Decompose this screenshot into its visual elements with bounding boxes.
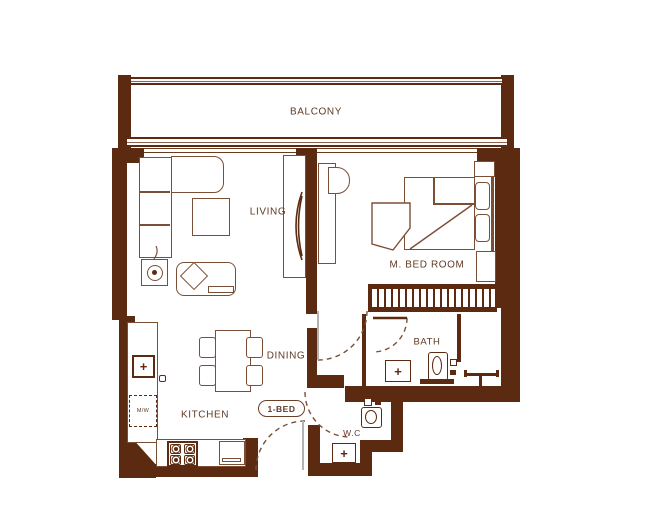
bath-toilet xyxy=(428,352,448,381)
burner-icon xyxy=(184,455,195,465)
bath-flush-dot xyxy=(450,370,456,375)
wc-cistern xyxy=(364,398,372,406)
bed-sheet-line xyxy=(433,203,474,205)
microwave-label: M/W xyxy=(137,408,149,414)
lounge-chair-footrest xyxy=(208,286,234,293)
coffee-table xyxy=(192,198,230,236)
microwave-box: M/W xyxy=(129,395,157,427)
balcony-railing-top xyxy=(131,77,502,85)
entrance-door-arc xyxy=(256,421,305,470)
unit-type-label: 1-BED xyxy=(267,404,295,414)
kitchen-label: KITCHEN xyxy=(181,410,229,421)
toilet-bowl-icon xyxy=(365,410,377,424)
dining-label: DINING xyxy=(267,351,306,362)
burner-icon xyxy=(170,444,181,454)
sink-drainer xyxy=(222,458,241,462)
sofa-section-horizontal xyxy=(171,156,224,193)
master-bedroom-label: M. BED ROOM xyxy=(390,260,465,271)
nightstand-bottom xyxy=(476,251,496,282)
bedroom-door-arc xyxy=(318,311,367,360)
balcony-label: BALCONY xyxy=(290,107,342,118)
sofa-cushion-line xyxy=(140,224,170,226)
sofa-section-vertical xyxy=(139,157,172,258)
balcony-railing-bottom xyxy=(127,137,507,147)
wall-hallway-bottom-stub xyxy=(307,375,344,388)
pillow xyxy=(475,182,490,210)
bath-label: BATH xyxy=(413,337,440,348)
living-label: LIVING xyxy=(250,207,286,218)
dining-chair xyxy=(199,365,216,386)
wc-toilet xyxy=(361,407,382,428)
bath-basin xyxy=(385,360,411,382)
wc-basin xyxy=(332,443,356,463)
floor-plan: BALCONY LIVING M. xyxy=(0,0,660,529)
wall-bath-left-partition xyxy=(362,314,366,387)
unit-type-badge: 1-BED xyxy=(258,400,305,417)
wall-right-bedroom xyxy=(495,148,520,308)
burner-icon xyxy=(184,444,195,454)
wall-bath-shower-partition xyxy=(457,314,461,362)
toilet-bowl-icon xyxy=(432,356,442,375)
kitchen-sink-left xyxy=(132,355,155,378)
bedroom-stool xyxy=(328,167,350,194)
wall-hallway-left xyxy=(307,328,317,378)
dining-chair xyxy=(246,337,263,358)
bath-counter-strip xyxy=(420,379,454,384)
lamp-bulb-icon xyxy=(152,270,157,275)
pillow xyxy=(475,214,490,242)
dining-chair xyxy=(246,365,263,386)
shower-rail-stem xyxy=(479,375,482,387)
bed xyxy=(404,177,475,250)
bath-flush-box xyxy=(450,359,457,366)
floor-lamp xyxy=(141,259,168,286)
kitchen-knob xyxy=(159,375,166,382)
burner-icon xyxy=(170,455,181,465)
wall-wc-right xyxy=(391,397,403,442)
dining-chair xyxy=(199,337,216,358)
kitchen-sink-bottom xyxy=(219,441,245,465)
sofa-cushion-line xyxy=(140,191,170,193)
shower-rail-tick xyxy=(496,370,499,377)
bath-door-arc xyxy=(373,318,407,352)
wardrobe xyxy=(368,284,497,312)
wc-label: W.C xyxy=(343,428,361,438)
wall-living-bedroom-divider xyxy=(306,148,317,314)
lamp-shade-icon xyxy=(147,265,163,281)
shower-rail-tick xyxy=(464,370,467,377)
wc-cistern-dot xyxy=(375,399,381,405)
nightstand-top xyxy=(474,161,495,177)
tv-console-living xyxy=(283,155,306,278)
wall-left-upper xyxy=(112,148,127,320)
bed-sheet-line xyxy=(433,178,435,204)
